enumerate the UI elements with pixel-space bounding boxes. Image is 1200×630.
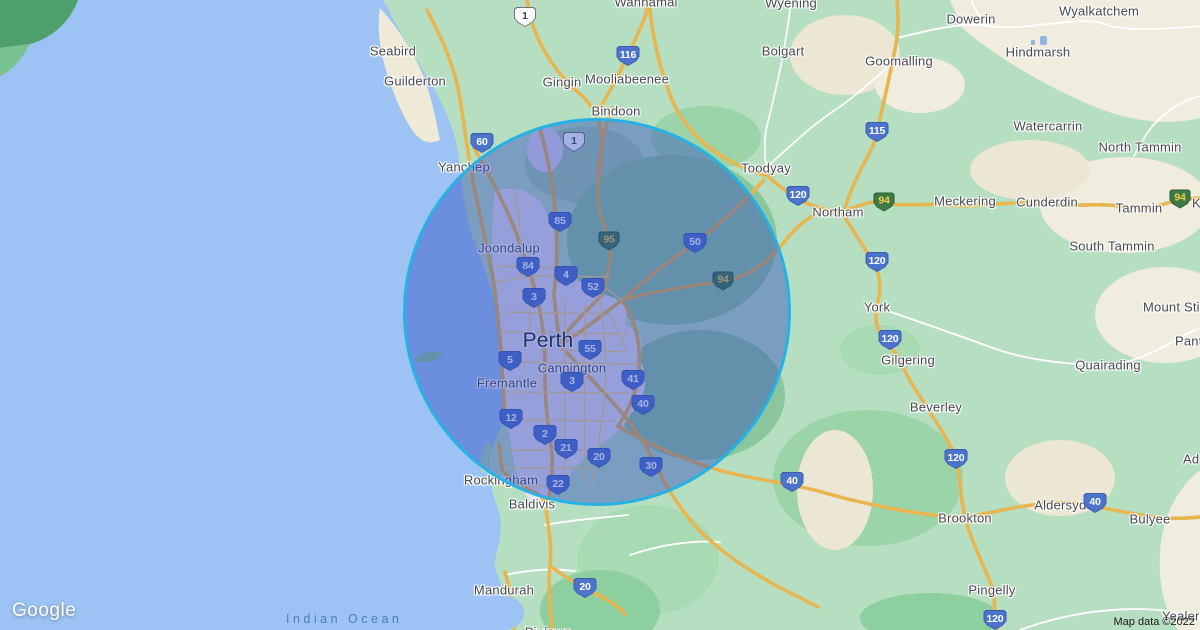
route-shield-116: 116 <box>617 46 640 66</box>
map-attribution: Map data ©2022 <box>1114 616 1196 628</box>
route-shield-120: 120 <box>879 330 902 350</box>
town-label-mooliabeenee: Mooliabeenee <box>585 72 669 87</box>
town-label-hindmarsh: Hindmarsh <box>1006 45 1071 60</box>
route-shield-120: 120 <box>866 252 889 272</box>
town-label-pingelly: Pingelly <box>968 583 1015 598</box>
town-label-goomalling: Goomalling <box>865 54 933 69</box>
town-label-mount-stirling: Mount Stirling <box>1143 300 1200 315</box>
map-canvas[interactable]: SeabirdGuildertonYanchepGinginMooliabeen… <box>0 0 1200 630</box>
town-label-gingin: Gingin <box>543 75 582 90</box>
route-shield-120: 120 <box>787 186 810 206</box>
town-label-gilgering: Gilgering <box>881 353 935 368</box>
town-label-northam: Northam <box>812 205 863 220</box>
town-label-seabird: Seabird <box>370 44 416 59</box>
town-label-north-tammin: North Tammin <box>1098 140 1181 155</box>
town-label-dowerin: Dowerin <box>946 12 995 27</box>
town-label-tammin: Tammin <box>1116 201 1163 216</box>
town-label-toodyay: Toodyay <box>741 161 791 176</box>
town-label-guilderton: Guilderton <box>384 74 446 89</box>
town-label-meckering: Meckering <box>934 194 996 209</box>
town-label-quairading: Quairading <box>1075 358 1141 373</box>
route-shield-20: 20 <box>574 578 597 598</box>
town-label-bindoon: Bindoon <box>591 104 640 119</box>
town-label-south-tammin: South Tammin <box>1069 239 1154 254</box>
town-label-bulyee: Bulyee <box>1130 512 1171 527</box>
town-label-wyalkatchem: Wyalkatchem <box>1059 4 1139 19</box>
town-label-cunderdin: Cunderdin <box>1016 195 1078 210</box>
route-shield-1: 1 <box>514 7 536 27</box>
route-shield-120: 120 <box>984 610 1007 630</box>
route-shield-120: 120 <box>945 449 968 469</box>
town-label-mandurah: Mandurah <box>474 583 534 598</box>
route-shield-94: 94 <box>874 193 895 212</box>
route-shield-115: 115 <box>866 122 889 142</box>
town-label-watercarrin: Watercarrin <box>1014 119 1083 134</box>
town-label-york: York <box>864 300 890 315</box>
town-label-pinjarra: Pinjarra <box>525 625 571 630</box>
route-shield-40: 40 <box>781 472 804 492</box>
google-logo[interactable]: Google <box>12 600 76 622</box>
town-label-bolgart: Bolgart <box>762 44 805 59</box>
town-label-wannamal: Wannamal <box>614 0 677 10</box>
town-label-ad: Ad <box>1183 452 1199 467</box>
town-label-beverley: Beverley <box>910 400 962 415</box>
route-shield-94: 94 <box>1170 190 1191 209</box>
town-label-brookton: Brookton <box>938 511 992 526</box>
ocean-label: Indian Ocean <box>286 612 402 626</box>
radius-circle-overlay <box>403 118 791 506</box>
town-label-pantapin: Pantapin <box>1175 334 1200 349</box>
town-label-k: K <box>1192 196 1200 211</box>
town-label-wyening: Wyening <box>765 0 817 11</box>
